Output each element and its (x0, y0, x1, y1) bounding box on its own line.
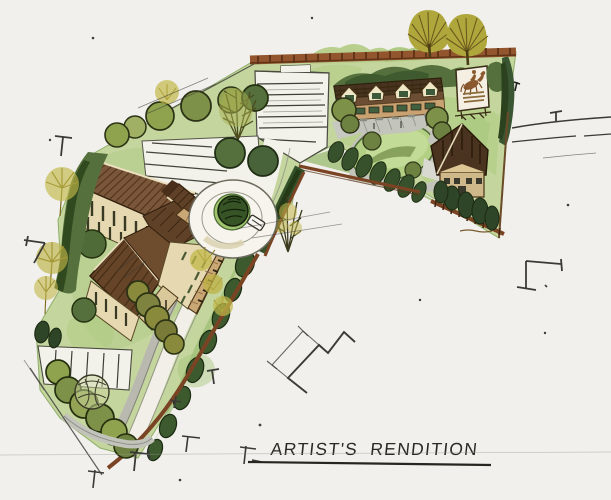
svg-text:ARTIST'S RENDITION: ARTIST'S RENDITION (270, 439, 480, 459)
